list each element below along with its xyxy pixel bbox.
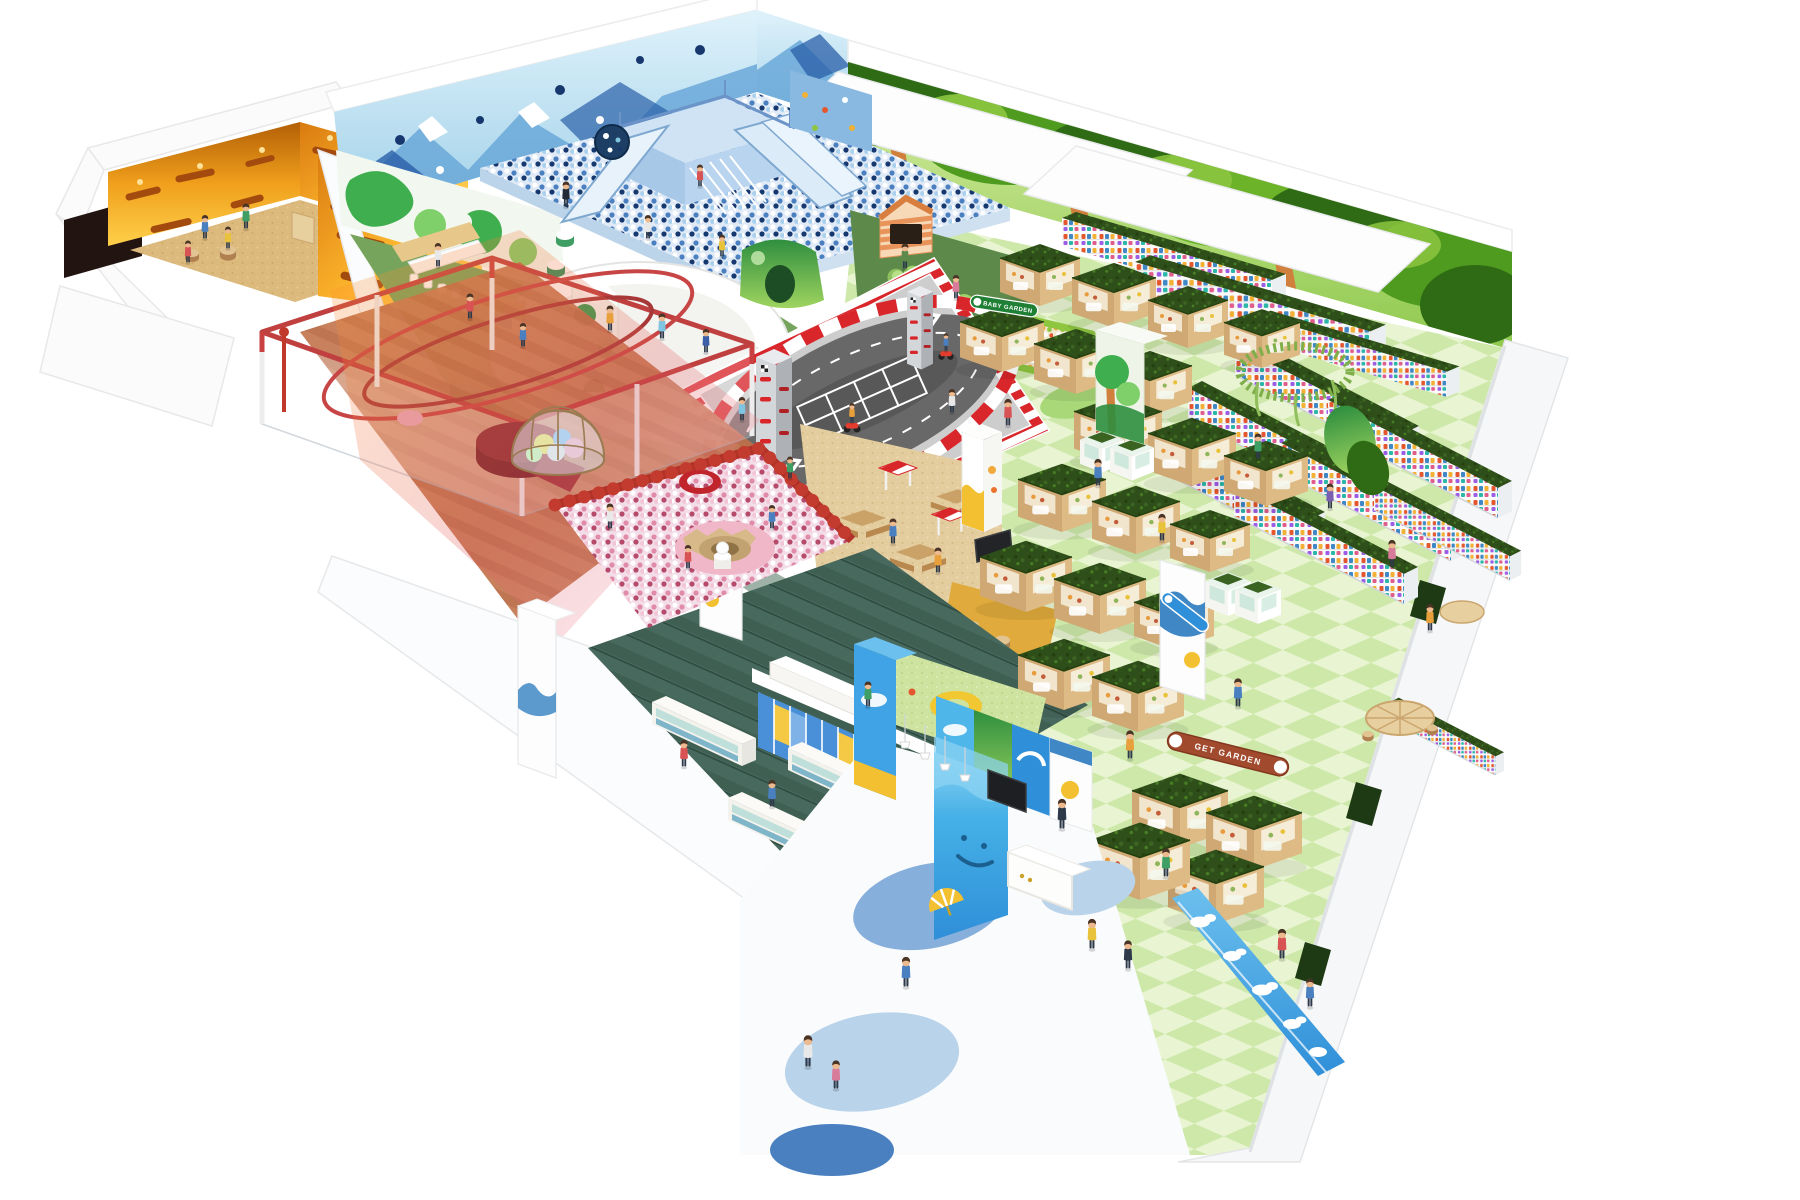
toy-shelf (292, 212, 314, 244)
dot-target-board (595, 125, 629, 159)
race-graphics-tower (907, 286, 933, 370)
smiley-wall (924, 736, 1008, 940)
red-funnel-pool (679, 470, 721, 494)
floor-blob (770, 1124, 894, 1176)
market-round-table (1440, 601, 1484, 623)
playground-render-page: BABY GARDEN GET GARDEN (0, 0, 1800, 1200)
claw-machine (1235, 580, 1281, 624)
yellow-tower (962, 424, 1002, 532)
round-stool (556, 230, 574, 247)
round-stool (220, 246, 236, 261)
market-sign-tower (1159, 560, 1211, 700)
playground-isometric-render: BABY GARDEN GET GARDEN (0, 0, 1800, 1200)
pedestal (714, 542, 731, 569)
green-blob-tower (740, 239, 824, 308)
claw-machine (1110, 439, 1154, 481)
